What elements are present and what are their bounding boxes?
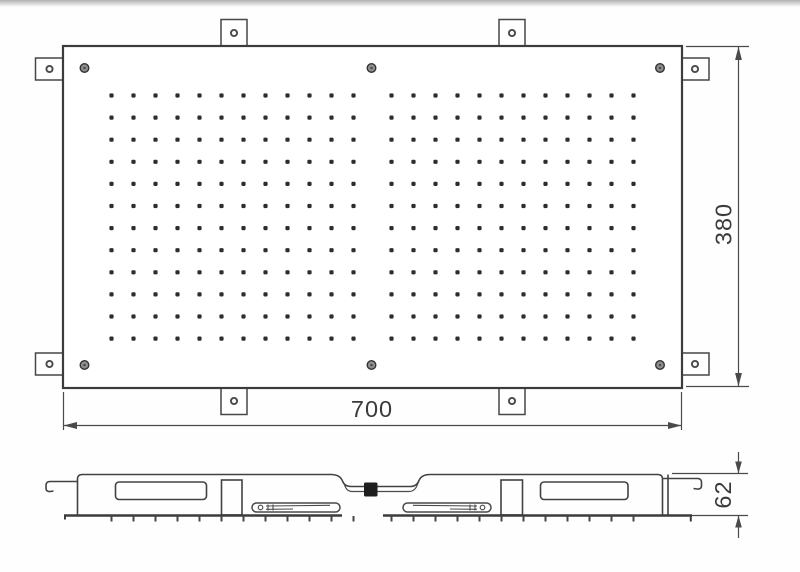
nozzle-dot	[477, 182, 481, 186]
nozzle-dot	[263, 138, 267, 142]
nozzle-dot	[109, 160, 113, 164]
nozzle-dot	[175, 138, 179, 142]
nozzle-dot	[307, 248, 311, 252]
nozzle-dot	[109, 270, 113, 274]
nozzle-dot	[587, 160, 591, 164]
nozzle-dot	[131, 248, 135, 252]
nozzle-dot	[197, 314, 201, 318]
nozzle-dot	[197, 337, 201, 341]
nozzle-dot	[631, 292, 635, 296]
nozzle-dot	[219, 314, 223, 318]
nozzle-dot	[285, 248, 289, 252]
technical-drawing-svg: 700 380	[0, 0, 800, 572]
nozzle-dot	[219, 270, 223, 274]
nozzle-dot	[197, 93, 201, 97]
nozzle-dot	[153, 292, 157, 296]
nozzle-dot	[219, 138, 223, 142]
nozzle-dot	[285, 93, 289, 97]
nozzle-dot	[153, 226, 157, 230]
nozzle-dot	[477, 93, 481, 97]
nozzle-dot	[411, 160, 415, 164]
nozzle-dot	[565, 270, 569, 274]
nozzle-dot	[543, 226, 547, 230]
tab-hole-icon	[692, 361, 698, 367]
nozzle-dot	[499, 204, 503, 208]
nozzle-dot	[565, 204, 569, 208]
nozzle-dot	[609, 182, 613, 186]
nozzle-dot	[521, 337, 525, 341]
nozzle-dot	[109, 116, 113, 120]
nozzle-dot	[389, 270, 393, 274]
nozzle-dot	[263, 116, 267, 120]
nozzle-dot	[285, 226, 289, 230]
nozzle-dot	[219, 248, 223, 252]
nozzle-dot	[131, 270, 135, 274]
nozzle-dot	[389, 93, 393, 97]
nozzle-dot	[455, 337, 459, 341]
nozzle-dot	[499, 314, 503, 318]
nozzle-dot	[543, 270, 547, 274]
nozzle-dot	[499, 116, 503, 120]
nozzle-dot	[433, 204, 437, 208]
nozzle-dot	[329, 270, 333, 274]
nozzle-dot	[241, 138, 245, 142]
nozzle-dot	[521, 160, 525, 164]
nozzle-dot	[307, 314, 311, 318]
nozzle-dot	[631, 93, 635, 97]
nozzle-dot	[241, 270, 245, 274]
nozzle-dot	[543, 337, 547, 341]
nozzle-dot	[197, 182, 201, 186]
nozzle-dot	[455, 292, 459, 296]
flow-slot-right	[403, 503, 491, 512]
nozzle-dot	[433, 116, 437, 120]
nozzle-dot	[565, 116, 569, 120]
nozzle-dot	[175, 226, 179, 230]
nozzle-dot	[389, 138, 393, 142]
nozzle-dot	[109, 292, 113, 296]
nozzle-dot	[477, 314, 481, 318]
nozzle-dot	[109, 93, 113, 97]
flow-slot-left	[252, 503, 340, 512]
nozzle-dot	[543, 116, 547, 120]
nozzle-dot	[477, 226, 481, 230]
nozzle-dot	[219, 182, 223, 186]
nozzle-dot	[285, 204, 289, 208]
nozzle-dot	[197, 204, 201, 208]
nozzle-dot	[131, 204, 135, 208]
nozzle-dot	[433, 337, 437, 341]
nozzle-dot	[499, 160, 503, 164]
nozzle-dot	[131, 116, 135, 120]
tab-hole-icon	[509, 30, 515, 36]
nozzle-dot	[329, 93, 333, 97]
nozzle-dot	[241, 248, 245, 252]
nozzle-dot	[587, 116, 591, 120]
arrow-down-icon	[735, 373, 742, 387]
nozzle-dot	[631, 138, 635, 142]
nozzle-dot	[329, 292, 333, 296]
tab-hole-icon	[509, 398, 515, 404]
nozzle-dot	[109, 314, 113, 318]
nozzle-dot	[543, 292, 547, 296]
nozzle-dot	[433, 314, 437, 318]
nozzle-dot	[411, 204, 415, 208]
nozzle-dot	[455, 270, 459, 274]
nozzle-dot	[241, 204, 245, 208]
side-view	[46, 475, 702, 522]
nozzle-dot	[307, 93, 311, 97]
nozzle-dot	[587, 226, 591, 230]
nozzle-dot	[389, 292, 393, 296]
nozzle-dot	[455, 116, 459, 120]
nozzle-dot	[565, 337, 569, 341]
nozzle-dot	[109, 182, 113, 186]
nozzle-dot	[307, 116, 311, 120]
nozzle-dot	[131, 314, 135, 318]
nozzle-dot	[455, 204, 459, 208]
nozzle-dot	[197, 226, 201, 230]
dimension-label-width: 700	[351, 396, 393, 422]
nozzle-dot	[263, 314, 267, 318]
nozzle-dot	[631, 314, 635, 318]
nozzle-dot	[197, 116, 201, 120]
nozzle-dot	[609, 314, 613, 318]
nozzle-dot	[285, 116, 289, 120]
nozzle-dot	[565, 226, 569, 230]
nozzle-dot	[307, 337, 311, 341]
nozzle-dot	[521, 116, 525, 120]
nozzle-dot	[241, 93, 245, 97]
nozzle-dot	[153, 160, 157, 164]
nozzle-dot	[219, 204, 223, 208]
nozzle-dot	[631, 204, 635, 208]
nozzle-dot	[433, 292, 437, 296]
arrow-left-icon	[64, 422, 78, 429]
nozzle-dot	[543, 93, 547, 97]
nozzle-dot	[307, 138, 311, 142]
nozzle-dot	[219, 93, 223, 97]
nozzle-dot	[197, 248, 201, 252]
nozzle-dot	[609, 270, 613, 274]
nozzle-dot	[263, 204, 267, 208]
nozzle-dot	[609, 337, 613, 341]
water-inlet-connector	[364, 483, 378, 497]
divider-right	[501, 480, 523, 515]
nozzle-dot	[307, 204, 311, 208]
nozzle-dot	[499, 138, 503, 142]
nozzle-dot	[241, 314, 245, 318]
nozzle-dot	[131, 138, 135, 142]
nozzle-dot	[455, 182, 459, 186]
nozzle-dot	[455, 314, 459, 318]
nozzle-dot	[499, 337, 503, 341]
nozzle-dot	[587, 182, 591, 186]
arrow-right-icon	[668, 422, 682, 429]
nozzle-dot	[241, 160, 245, 164]
nozzle-dot	[565, 138, 569, 142]
arrow-up-icon	[735, 516, 742, 528]
tab-hole-icon	[46, 66, 52, 72]
dimension-label-depth: 62	[710, 480, 736, 508]
nozzle-dot	[307, 182, 311, 186]
nozzle-dot	[153, 116, 157, 120]
nozzle-dot	[521, 93, 525, 97]
nozzle-dot	[411, 138, 415, 142]
nozzle-dot	[175, 314, 179, 318]
nozzle-dot	[389, 204, 393, 208]
nozzle-dot	[389, 337, 393, 341]
nozzle-dot	[219, 116, 223, 120]
nozzle-dot	[351, 314, 355, 318]
nozzle-dot	[389, 314, 393, 318]
nozzle-dot	[175, 337, 179, 341]
nozzle-dot	[587, 270, 591, 274]
nozzle-dot	[329, 160, 333, 164]
nozzle-dot	[351, 270, 355, 274]
nozzle-dot	[263, 93, 267, 97]
nozzle-dot	[609, 292, 613, 296]
nozzle-dot	[411, 270, 415, 274]
nozzle-dot	[521, 226, 525, 230]
nozzle-dot	[521, 138, 525, 142]
nozzle-dot	[433, 270, 437, 274]
nozzle-dot	[351, 292, 355, 296]
nozzle-dot	[521, 270, 525, 274]
nozzle-dot	[241, 116, 245, 120]
nozzle-dot	[153, 182, 157, 186]
nozzle-dot	[631, 116, 635, 120]
nozzle-dot	[109, 226, 113, 230]
nozzle-dot	[285, 182, 289, 186]
screw-center-icon	[370, 364, 373, 367]
nozzle-dot	[389, 182, 393, 186]
screw-center-icon	[83, 364, 86, 367]
nozzle-dot	[241, 292, 245, 296]
nozzle-dot	[631, 160, 635, 164]
nozzle-dot	[411, 248, 415, 252]
nozzle-dot	[631, 270, 635, 274]
nozzle-dot	[197, 138, 201, 142]
top-edge-shadow	[0, 0, 800, 7]
nozzle-dot	[565, 248, 569, 252]
nozzle-dot	[411, 337, 415, 341]
nozzle-dot	[285, 160, 289, 164]
nozzle-dot	[285, 270, 289, 274]
nozzle-dot	[153, 314, 157, 318]
nozzle-dot	[565, 314, 569, 318]
arrow-up-icon	[735, 47, 742, 61]
left-bracket-hook	[46, 482, 78, 492]
nozzle-dot	[351, 182, 355, 186]
nozzle-dot	[285, 314, 289, 318]
nozzle-dot	[131, 93, 135, 97]
nozzle-dot	[477, 138, 481, 142]
nozzle-dot	[543, 160, 547, 164]
nozzle-dot	[329, 182, 333, 186]
nozzle-dot	[329, 116, 333, 120]
nozzle-dot	[477, 248, 481, 252]
drawing-canvas: 700 380	[0, 0, 800, 572]
nozzle-dot	[351, 337, 355, 341]
nozzle-dot	[411, 314, 415, 318]
nozzle-dot	[587, 314, 591, 318]
nozzle-dot	[131, 160, 135, 164]
nozzle-dot	[631, 337, 635, 341]
nozzle-dot	[521, 292, 525, 296]
nozzle-dot	[587, 337, 591, 341]
nozzle-dot	[263, 226, 267, 230]
nozzle-dot	[351, 160, 355, 164]
nozzle-dot	[499, 270, 503, 274]
nozzle-dot	[389, 226, 393, 230]
nozzle-dot	[175, 248, 179, 252]
nozzle-dot	[565, 93, 569, 97]
nozzle-dot	[197, 292, 201, 296]
nozzle-dot	[389, 248, 393, 252]
side-nozzle-ticks	[112, 516, 634, 522]
nozzle-dot	[433, 182, 437, 186]
nozzle-dot	[131, 226, 135, 230]
nozzle-dot	[109, 248, 113, 252]
nozzle-dot	[351, 93, 355, 97]
top-view	[36, 20, 710, 415]
nozzle-dot	[411, 93, 415, 97]
nozzle-dot	[131, 292, 135, 296]
nozzle-dot	[433, 160, 437, 164]
dimension-depth: 62	[672, 452, 748, 538]
nozzle-dot	[153, 204, 157, 208]
tab-hole-icon	[231, 398, 237, 404]
nozzle-dot	[175, 270, 179, 274]
nozzle-dot	[219, 226, 223, 230]
nozzle-dot	[175, 160, 179, 164]
nozzle-dot	[351, 116, 355, 120]
nozzle-dot	[565, 182, 569, 186]
nozzle-dot	[307, 160, 311, 164]
nozzle-dot	[631, 248, 635, 252]
nozzle-dot	[543, 314, 547, 318]
dimension-height: 380	[686, 47, 749, 387]
nozzle-dot	[477, 270, 481, 274]
nozzle-dot	[433, 248, 437, 252]
nozzle-dot	[153, 337, 157, 341]
nozzle-dot	[175, 93, 179, 97]
screw-center-icon	[659, 364, 662, 367]
nozzle-dot	[477, 204, 481, 208]
nozzle-dot	[175, 116, 179, 120]
nozzle-dot	[351, 204, 355, 208]
arrow-down-icon	[735, 462, 742, 474]
nozzle-dot	[175, 182, 179, 186]
nozzle-dot	[609, 160, 613, 164]
nozzle-dot	[477, 160, 481, 164]
nozzle-dot	[455, 248, 459, 252]
nozzle-dot	[499, 248, 503, 252]
nozzle-dot	[351, 138, 355, 142]
nozzle-dot	[285, 337, 289, 341]
nozzle-dot	[411, 226, 415, 230]
nozzle-dot	[219, 160, 223, 164]
nozzle-dot	[241, 226, 245, 230]
nozzle-dot	[389, 160, 393, 164]
nozzle-dot	[631, 182, 635, 186]
nozzle-dot	[543, 248, 547, 252]
nozzle-dot	[219, 337, 223, 341]
nozzle-dot	[175, 204, 179, 208]
nozzle-dot	[433, 226, 437, 230]
nozzle-dot	[609, 226, 613, 230]
nozzle-dot	[131, 182, 135, 186]
nozzle-dot	[543, 204, 547, 208]
nozzle-dot	[499, 93, 503, 97]
nozzle-dot	[543, 182, 547, 186]
nozzle-dot	[411, 116, 415, 120]
nozzle-dot	[499, 182, 503, 186]
nozzle-dot	[587, 204, 591, 208]
nozzle-dot	[411, 292, 415, 296]
dimension-width: 700	[64, 392, 682, 430]
nozzle-dot	[609, 116, 613, 120]
nozzle-dot	[153, 270, 157, 274]
nozzle-dot	[351, 226, 355, 230]
nozzle-dot	[197, 270, 201, 274]
nozzle-dot	[587, 138, 591, 142]
nozzle-dot	[109, 204, 113, 208]
screw-center-icon	[83, 67, 86, 70]
nozzle-dot	[609, 248, 613, 252]
nozzle-dot	[329, 204, 333, 208]
nozzle-dot	[389, 116, 393, 120]
nozzle-dot	[307, 270, 311, 274]
screw-center-icon	[370, 67, 373, 70]
nozzle-dot	[263, 270, 267, 274]
nozzle-dot	[521, 314, 525, 318]
nozzle-dot	[521, 204, 525, 208]
nozzle-dot	[263, 248, 267, 252]
nozzle-dot	[521, 248, 525, 252]
nozzle-dot	[433, 138, 437, 142]
nozzle-dot	[153, 93, 157, 97]
nozzle-dot	[263, 182, 267, 186]
nozzle-dot	[565, 292, 569, 296]
nozzle-dot	[499, 226, 503, 230]
nozzle-dot	[329, 248, 333, 252]
nozzle-dot	[455, 138, 459, 142]
nozzle-dot	[329, 337, 333, 341]
screw-center-icon	[659, 67, 662, 70]
nozzle-dot	[153, 248, 157, 252]
nozzle-dot	[587, 292, 591, 296]
internal-slot-left	[116, 482, 207, 500]
tab-hole-icon	[46, 361, 52, 367]
nozzle-dot	[609, 204, 613, 208]
nozzle-dot	[477, 337, 481, 341]
nozzle-dot	[109, 337, 113, 341]
nozzle-dot	[455, 160, 459, 164]
nozzle-dot	[499, 292, 503, 296]
dimension-label-height: 380	[711, 203, 737, 245]
nozzle-dot	[197, 160, 201, 164]
nozzle-dot	[609, 138, 613, 142]
nozzle-dot	[455, 226, 459, 230]
nozzle-dot	[285, 292, 289, 296]
nozzle-dot	[433, 93, 437, 97]
nozzle-dot	[631, 226, 635, 230]
nozzle-dot	[455, 93, 459, 97]
nozzle-dot	[477, 116, 481, 120]
nozzle-dot	[521, 182, 525, 186]
